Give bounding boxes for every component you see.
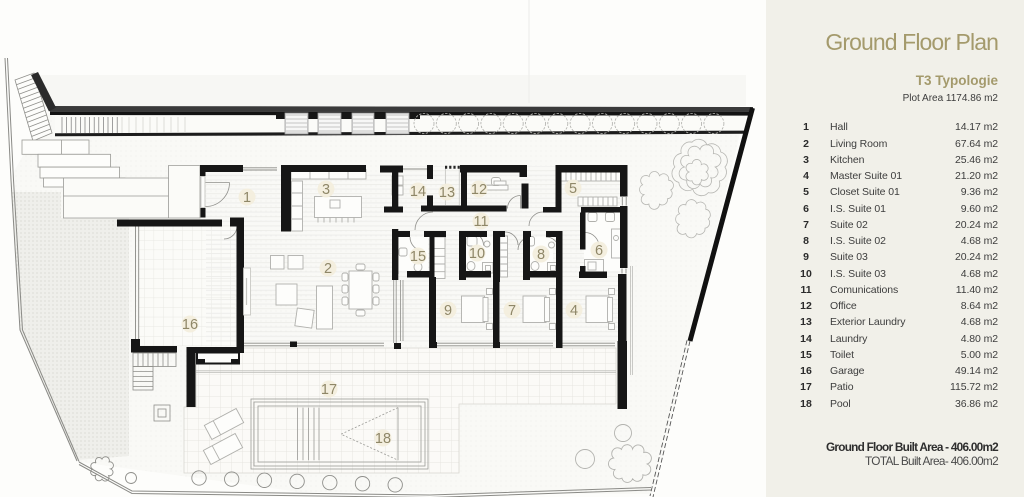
- svg-text:5: 5: [569, 181, 577, 197]
- svg-text:11: 11: [473, 214, 488, 230]
- svg-text:17: 17: [321, 382, 337, 398]
- svg-text:8: 8: [537, 247, 545, 263]
- svg-text:10: 10: [469, 246, 485, 262]
- svg-text:14: 14: [410, 184, 426, 200]
- svg-text:2: 2: [324, 261, 332, 277]
- svg-text:9: 9: [444, 303, 452, 319]
- svg-text:6: 6: [595, 243, 603, 259]
- svg-text:7: 7: [508, 303, 516, 319]
- svg-text:15: 15: [410, 249, 426, 265]
- svg-text:3: 3: [322, 182, 330, 198]
- svg-text:16: 16: [182, 317, 198, 333]
- svg-text:4: 4: [570, 303, 578, 319]
- svg-text:12: 12: [471, 182, 487, 198]
- svg-text:1: 1: [243, 190, 251, 206]
- svg-text:18: 18: [375, 431, 391, 447]
- svg-text:13: 13: [439, 185, 455, 201]
